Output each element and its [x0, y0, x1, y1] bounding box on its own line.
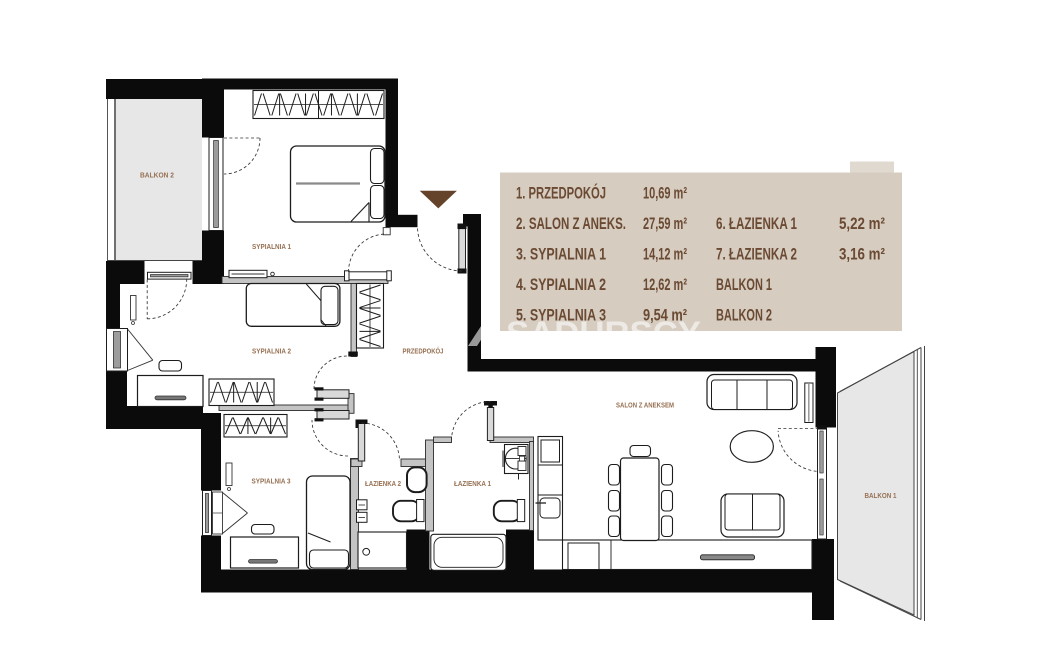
svg-text:BALKON 1: BALKON 1: [716, 276, 772, 294]
svg-text:PRZEDPOKÓJ: PRZEDPOKÓJ: [403, 347, 444, 356]
svg-text:SALON Z ANEKSEM: SALON Z ANEKSEM: [616, 401, 674, 410]
svg-text:SADURSCY: SADURSCY: [506, 315, 701, 352]
svg-text:SYPIALNIA 1: SYPIALNIA 1: [252, 242, 292, 251]
svg-text:14,12 m²: 14,12 m²: [643, 246, 687, 264]
svg-text:3,16 m²: 3,16 m²: [839, 246, 885, 264]
svg-text:5,22 m²: 5,22 m²: [839, 215, 885, 233]
svg-text:2. SALON Z ANEKS.: 2. SALON Z ANEKS.: [516, 215, 626, 233]
svg-text:SYPIALNIA 3: SYPIALNIA 3: [252, 477, 291, 486]
svg-text:SYPIALNIA 2: SYPIALNIA 2: [252, 347, 291, 356]
svg-text:1. PRZEDPOKÓJ: 1. PRZEDPOKÓJ: [516, 184, 606, 203]
svg-text:ŁAZIENKA 1: ŁAZIENKA 1: [454, 479, 492, 488]
svg-text:3. SYPIALNIA 1: 3. SYPIALNIA 1: [516, 246, 606, 264]
svg-text:6. ŁAZIENKA 1: 6. ŁAZIENKA 1: [716, 215, 797, 233]
svg-text:27,59 m²: 27,59 m²: [643, 215, 687, 233]
svg-text:10,69 m²: 10,69 m²: [643, 185, 687, 203]
svg-text:ŁAZIENKA 2: ŁAZIENKA 2: [365, 479, 401, 488]
svg-text:BALKON 1: BALKON 1: [865, 491, 898, 500]
svg-text:4. SYPIALNIA 2: 4. SYPIALNIA 2: [516, 276, 606, 294]
svg-text:BALKON 2: BALKON 2: [140, 171, 174, 180]
svg-text:12,62 m²: 12,62 m²: [643, 276, 687, 294]
svg-text:7. ŁAZIENKA 2: 7. ŁAZIENKA 2: [716, 246, 797, 264]
svg-text:BALKON 2: BALKON 2: [716, 307, 772, 325]
